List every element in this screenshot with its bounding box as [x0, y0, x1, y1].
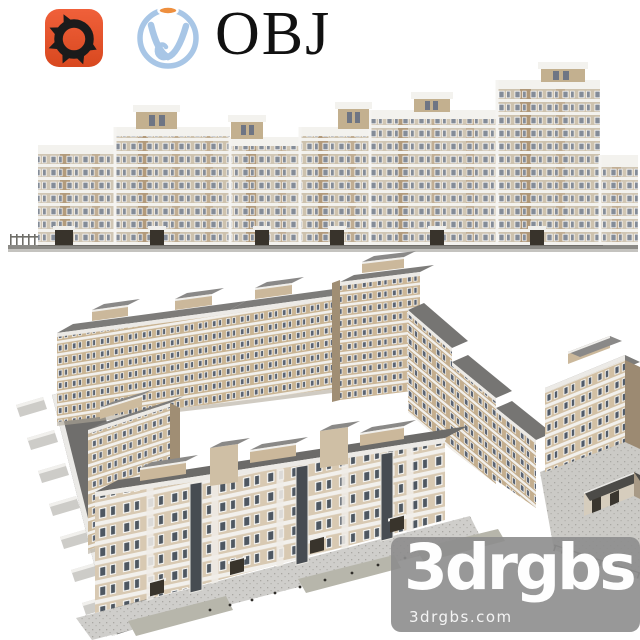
back-row-left-building [57, 288, 246, 426]
elevation-render [0, 60, 640, 260]
watermark: 3drgbs 3drgbs.com [391, 537, 640, 632]
watermark-url: 3drgbs.com [409, 608, 513, 626]
watermark-title: 3drgbs [404, 537, 634, 605]
section-7fl-left [38, 145, 115, 245]
section-7fl-right [600, 155, 638, 245]
section-9fl [115, 127, 230, 245]
section-13fl [497, 80, 600, 245]
corona-renderer-icon [44, 8, 104, 68]
section-11fl [370, 110, 497, 245]
elevation-building [38, 62, 638, 245]
model-preview-card: OBJ [0, 0, 640, 640]
